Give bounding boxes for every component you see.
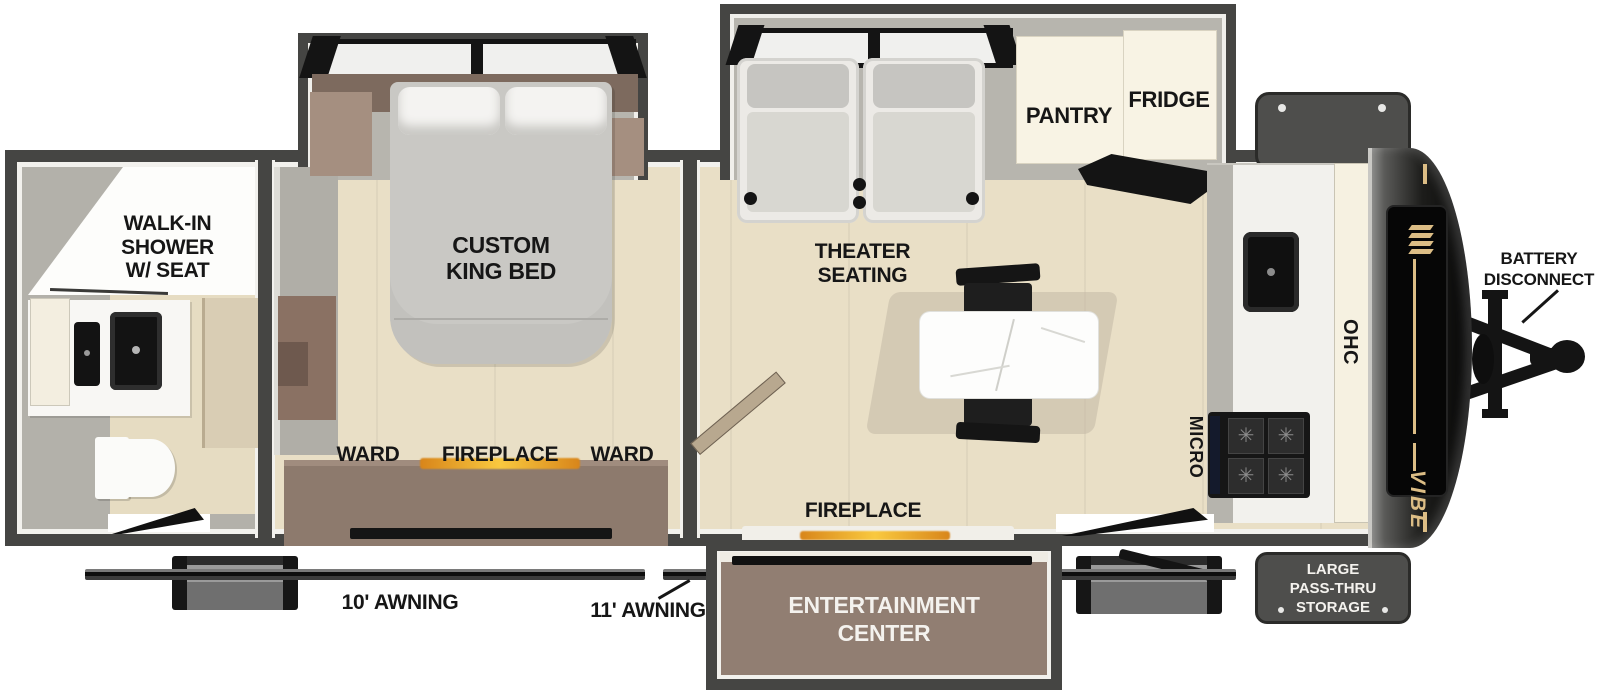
recliner-button xyxy=(853,196,866,209)
pass-thru-storage-box: LARGE PASS-THRU STORAGE xyxy=(1255,552,1411,624)
seat-cushion xyxy=(747,112,849,212)
stove-burner: ✳ xyxy=(1228,418,1264,454)
sink-drain xyxy=(1267,268,1275,276)
bathroom-sink-main xyxy=(110,312,162,390)
ward-right-label: WARD xyxy=(582,444,662,467)
floorplan-canvas: 10' AWNING 11' AWNING WALK-IN SHOWER W/ … xyxy=(0,0,1600,697)
logo-underline xyxy=(1413,443,1416,471)
entertainment-slideout: ENTERTAINMENT CENTER xyxy=(706,540,1062,690)
bedroom-fireplace-label: FIREPLACE xyxy=(430,444,570,467)
awning-11-label: 11' AWNING xyxy=(568,600,728,623)
vanity-side-cabinet xyxy=(30,298,70,406)
logo-hatch-stripe xyxy=(1408,225,1434,230)
cap-gold-tick xyxy=(1423,164,1427,184)
logo-hatch-stripe xyxy=(1408,249,1434,254)
marble-vein xyxy=(995,319,1015,391)
nightstand-left xyxy=(310,92,372,176)
storage-rivet xyxy=(1382,607,1388,613)
wall-bath-bedroom xyxy=(255,160,275,538)
pantry-label: PANTRY xyxy=(1016,104,1122,128)
kitchen-stove: ✳ ✳ ✳ ✳ xyxy=(1208,412,1310,498)
toilet-tank xyxy=(95,437,129,499)
recliner-button xyxy=(966,192,979,205)
bedroom-desk xyxy=(278,296,336,420)
pillow-left xyxy=(398,87,500,135)
hitch-crossbar-cap xyxy=(1482,409,1508,418)
stove-burner: ✳ xyxy=(1228,458,1264,494)
bedroom-tv xyxy=(350,528,612,539)
entertainment-label: ENTERTAINMENT CENTER xyxy=(756,592,1012,647)
toilet-bowl xyxy=(127,439,175,497)
awning-rail-10ft xyxy=(85,569,645,580)
bed-fold-line xyxy=(394,318,608,320)
fridge-label: FRIDGE xyxy=(1123,88,1215,112)
dinette-table xyxy=(920,312,1098,398)
recliner-button xyxy=(744,192,757,205)
cover-rivet xyxy=(1278,104,1286,112)
sink-drain xyxy=(84,350,90,356)
ohc-label: OHC xyxy=(1341,312,1361,372)
bathroom-sink-small xyxy=(74,322,100,386)
hitch-crossbar-cap xyxy=(1482,290,1508,299)
awning-11-pointer-line xyxy=(658,579,690,599)
awning-10-label: 10' AWNING xyxy=(310,592,490,615)
sink-drain xyxy=(132,346,140,354)
wall-bedroom-living xyxy=(680,160,700,538)
recliner-button xyxy=(853,178,866,191)
stove-burner: ✳ xyxy=(1268,458,1304,494)
kitchen-sink xyxy=(1243,232,1299,312)
logo-hatch-stripe xyxy=(1408,233,1434,238)
pantry-cabinet xyxy=(1016,36,1124,164)
battery-disconnect-label: BATTERY DISCONNECT xyxy=(1478,248,1600,291)
stove-burner: ✳ xyxy=(1268,418,1304,454)
window-mullion xyxy=(471,44,483,76)
living-fireplace-label: FIREPLACE xyxy=(798,500,928,523)
battery-pointer-line xyxy=(1521,289,1558,323)
front-cap: VIBE xyxy=(1368,148,1472,548)
pillow-right xyxy=(505,87,607,135)
seat-back xyxy=(873,64,975,108)
cap-gold-tick xyxy=(1423,512,1427,532)
theater-seating-label: THEATER SEATING xyxy=(800,240,925,288)
coupler-ball xyxy=(1549,340,1585,373)
stove-control-strip xyxy=(1210,416,1220,494)
entertainment-tv xyxy=(732,556,1032,565)
ward-left-label: WARD xyxy=(328,444,408,467)
bathroom-cabinet-tan xyxy=(202,298,258,448)
seat-back xyxy=(747,64,849,108)
living-fireplace-glow xyxy=(800,531,950,540)
tongue-jack xyxy=(1472,334,1494,384)
seat-cushion xyxy=(873,112,975,212)
bathroom-label: WALK-IN SHOWER W/ SEAT xyxy=(100,212,235,283)
cap-window: VIBE xyxy=(1386,205,1448,497)
king-bed-label: CUSTOM KING BED xyxy=(425,232,577,285)
desk-shadow xyxy=(278,342,308,386)
entry-step-left xyxy=(172,556,298,610)
marble-vein xyxy=(1041,327,1085,343)
cover-rivet xyxy=(1378,104,1386,112)
micro-label: MICRO xyxy=(1186,411,1206,483)
logo-hatch-stripe xyxy=(1408,241,1434,246)
logo-vertical-line xyxy=(1413,259,1416,434)
storage-rivet xyxy=(1278,607,1284,613)
